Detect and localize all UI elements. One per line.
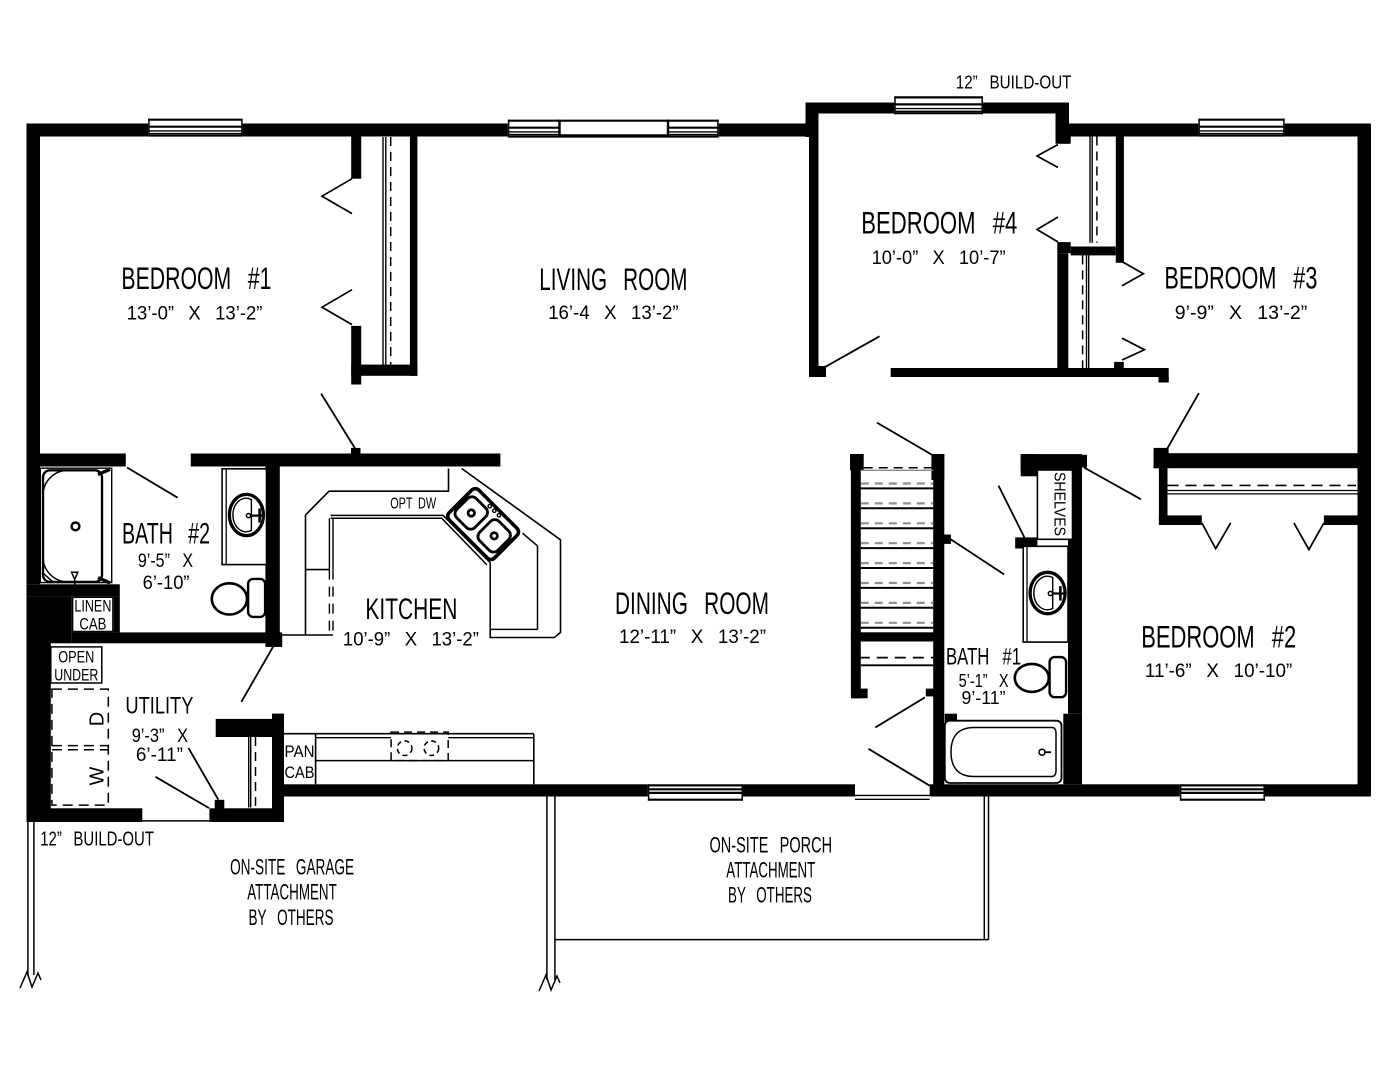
svg-text:BY OTHERS: BY OTHERS [728, 883, 812, 908]
svg-text:9’-5” X: 9’-5” X [138, 550, 193, 572]
svg-text:6’-10”: 6’-10” [143, 572, 190, 594]
svg-text:UNDER: UNDER [54, 667, 98, 685]
svg-text:LINEN: LINEN [74, 598, 111, 616]
svg-text:12” BUILD-OUT: 12” BUILD-OUT [40, 829, 154, 851]
svg-text:OPEN: OPEN [58, 649, 94, 667]
svg-text:10’-9” X 13’-2”: 10’-9” X 13’-2” [343, 629, 479, 651]
svg-text:16’-4 X 13’-2”: 16’-4 X 13’-2” [548, 302, 678, 324]
svg-text:BEDROOM #2: BEDROOM #2 [1141, 618, 1296, 654]
svg-text:ATTACHMENT: ATTACHMENT [247, 879, 337, 904]
svg-text:6’-11”: 6’-11” [136, 744, 183, 766]
svg-text:11’-6” X 10’-10”: 11’-6” X 10’-10” [1145, 660, 1292, 682]
svg-text:KITCHEN: KITCHEN [365, 593, 457, 626]
svg-text:BY OTHERS: BY OTHERS [249, 905, 334, 930]
svg-text:BEDROOM #3: BEDROOM #3 [1164, 260, 1317, 296]
svg-text:SHELVES: SHELVES [1051, 472, 1068, 536]
svg-text:CAB: CAB [79, 616, 106, 634]
svg-text:ATTACHMENT: ATTACHMENT [726, 858, 815, 883]
svg-text:BEDROOM #1: BEDROOM #1 [121, 260, 271, 296]
svg-text:D: D [87, 712, 109, 726]
svg-text:LIVING ROOM: LIVING ROOM [539, 261, 687, 297]
svg-text:ON-SITE PORCH: ON-SITE PORCH [710, 832, 833, 857]
svg-text:ON-SITE GARAGE: ON-SITE GARAGE [230, 855, 354, 880]
svg-text:CAB: CAB [285, 763, 315, 782]
svg-text:10’-0” X 10’-7”: 10’-0” X 10’-7” [872, 247, 1006, 269]
svg-text:BATH #1: BATH #1 [946, 643, 1021, 670]
svg-text:UTILITY: UTILITY [125, 693, 193, 720]
svg-text:DINING ROOM: DINING ROOM [615, 585, 769, 621]
svg-text:9’-11”: 9’-11” [962, 688, 1006, 708]
svg-text:BEDROOM #4: BEDROOM #4 [861, 205, 1017, 241]
svg-text:12’-11” X 13’-2”: 12’-11” X 13’-2” [619, 626, 766, 648]
svg-text:12” BUILD-OUT: 12” BUILD-OUT [956, 72, 1072, 93]
svg-text:W: W [87, 766, 109, 785]
svg-text:OPT DW: OPT DW [390, 495, 436, 512]
svg-text:9’-9” X 13’-2”: 9’-9” X 13’-2” [1175, 302, 1308, 324]
svg-text:13’-0” X 13’-2”: 13’-0” X 13’-2” [127, 303, 263, 325]
svg-text:PAN: PAN [285, 742, 315, 761]
svg-text:BATH #2: BATH #2 [122, 517, 210, 550]
